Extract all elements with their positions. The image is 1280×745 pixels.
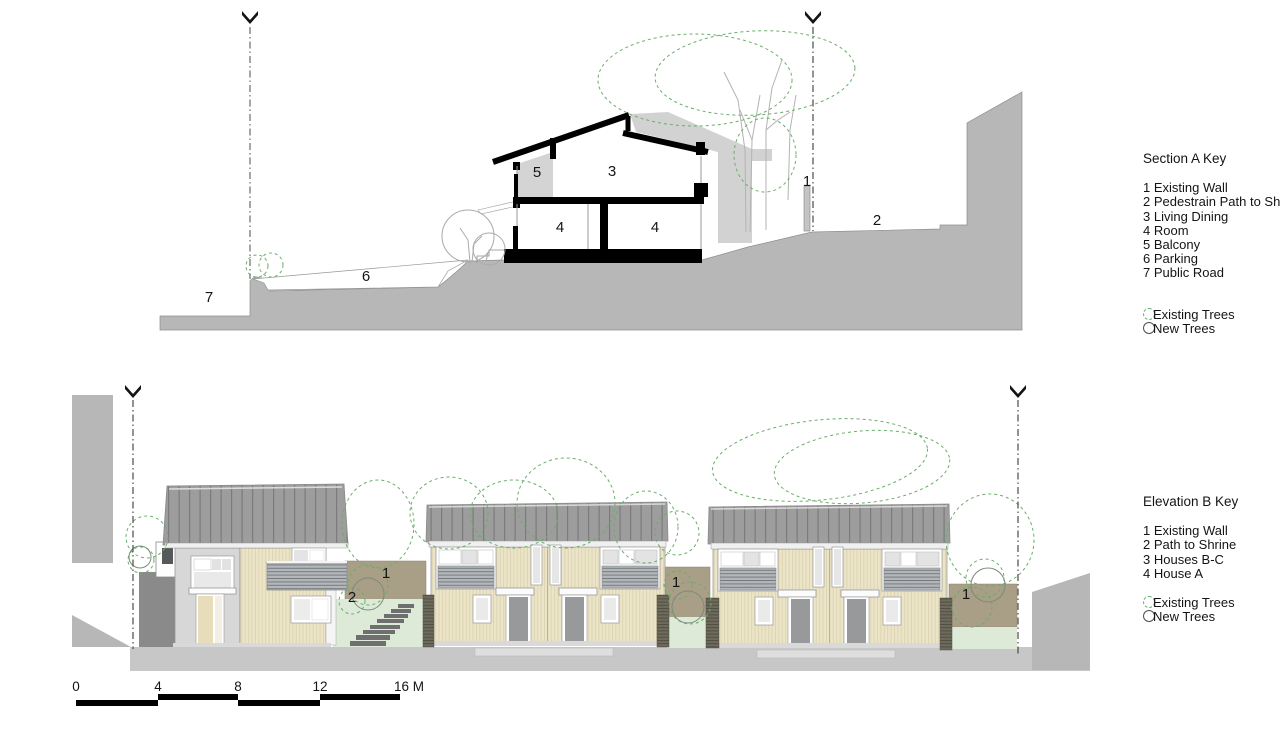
- elevation-tree-legend: Existing Trees New Trees: [1143, 596, 1238, 624]
- key-item: 5 Balcony: [1143, 238, 1280, 252]
- label-existing-wall-mid: 1: [672, 574, 680, 591]
- label-existing-wall-right: 1: [962, 586, 970, 603]
- label-balcony: 5: [533, 164, 541, 181]
- key-item: 2 Pedestrain Path to Shrine: [1143, 195, 1280, 209]
- section-marker-icon: [1010, 385, 1026, 398]
- architectural-drawing: 7 6 5 3 4 4 1 2: [0, 0, 1280, 740]
- section-tree-legend: Existing Trees New Trees: [1143, 308, 1280, 336]
- section-marker-icon: [242, 11, 258, 24]
- label-existing-wall: 1: [803, 173, 811, 190]
- key-item: 2 Path to Shrine: [1143, 538, 1238, 552]
- key-item: 4 House A: [1143, 567, 1238, 581]
- scale-bar-segments: [76, 694, 400, 706]
- existing-wall-stub: [804, 186, 810, 231]
- legend-label: New Trees: [1153, 609, 1215, 624]
- section-marker-icon: [805, 11, 821, 24]
- scale-tick-4: 4: [154, 679, 162, 694]
- label-parking: 6: [362, 268, 370, 285]
- section-key-items: 1 Existing Wall 2 Pedestrain Path to Shr…: [1143, 181, 1280, 280]
- section-key-title: Section A Key: [1143, 152, 1280, 166]
- scale-bar: 0 4 8 12 16 M: [72, 679, 424, 706]
- house-a-roof: [163, 484, 348, 545]
- roof-left-slope: [493, 115, 629, 162]
- legend-label: Existing Trees: [1153, 595, 1235, 610]
- key-item: 1 Existing Wall: [1143, 524, 1238, 538]
- elevation-key-title: Elevation B Key: [1143, 495, 1238, 509]
- scale-numbers: 0 4 8 12 16 M: [72, 679, 424, 694]
- label-path-to-shrine: 2: [348, 589, 356, 606]
- label-room-left: 4: [556, 219, 564, 236]
- elevation-key-items: 1 Existing Wall 2 Path to Shrine 3 House…: [1143, 524, 1238, 581]
- scale-tick-8: 8: [234, 679, 242, 694]
- label-public-road: 7: [205, 289, 213, 306]
- section-key: Section A Key 1 Existing Wall 2 Pedestra…: [1143, 152, 1280, 336]
- scale-tick-0: 0: [72, 679, 80, 694]
- key-item: 1 Existing Wall: [1143, 181, 1280, 195]
- section-cut-elements: [504, 138, 708, 263]
- legend-label: New Trees: [1153, 321, 1215, 336]
- section-a-drawing: 7 6 5 3 4 4 1 2: [160, 11, 1022, 330]
- house-c: [708, 504, 950, 658]
- dark-retaining-wall: [139, 572, 175, 648]
- scale-tick-16m: 16 M: [394, 679, 424, 694]
- parking-cut: [253, 260, 468, 290]
- key-item: 3 Houses B-C: [1143, 553, 1238, 567]
- house-b: [426, 502, 668, 656]
- elevation-b-drawing: 1 2 1 1: [72, 385, 1090, 671]
- scale-tick-12: 12: [312, 679, 327, 694]
- section-marker-icon: [125, 385, 141, 398]
- key-item: 4 Room: [1143, 224, 1280, 238]
- elevation-key: Elevation B Key 1 Existing Wall 2 Path t…: [1143, 495, 1238, 624]
- label-pedestrian-path: 2: [873, 212, 881, 229]
- label-living-dining: 3: [608, 163, 616, 180]
- key-item: 6 Parking: [1143, 252, 1280, 266]
- house-a: [156, 484, 348, 647]
- legend-label: Existing Trees: [1153, 307, 1235, 322]
- drawing-sheet: 7 6 5 3 4 4 1 2: [0, 0, 1280, 740]
- section-house: [477, 115, 810, 263]
- right-wall: [1032, 573, 1090, 670]
- key-item: 3 Living Dining: [1143, 210, 1280, 224]
- label-room-right: 4: [651, 219, 659, 236]
- left-cliff: [72, 395, 113, 563]
- house-a-balcony: [267, 562, 347, 590]
- key-item: 7 Public Road: [1143, 266, 1280, 280]
- label-existing-wall-left: 1: [382, 565, 390, 582]
